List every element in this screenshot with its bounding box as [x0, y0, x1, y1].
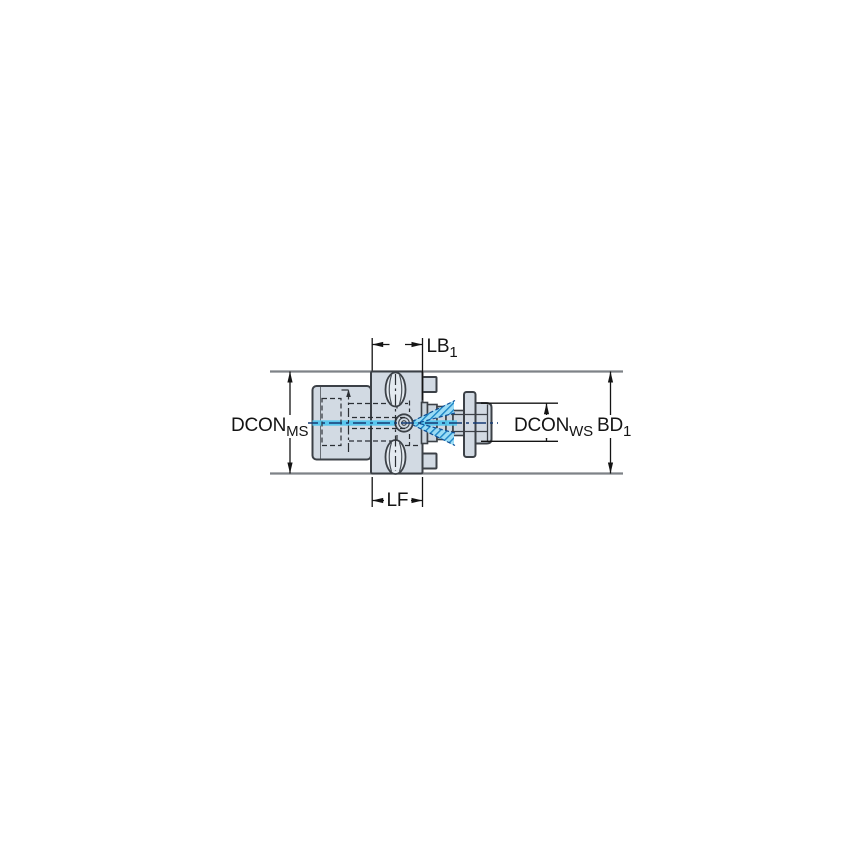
label-bd1: BD1 — [597, 415, 631, 438]
label-dcon-ws-main: DCON — [514, 415, 569, 436]
label-lf-main: LF — [387, 490, 409, 511]
label-lb1-main: LB — [427, 336, 450, 357]
label-dcon-ms: DCONMS — [231, 415, 308, 438]
label-dcon-ms-sub: MS — [286, 423, 308, 440]
label-dcon-ws-sub: WS — [569, 423, 593, 440]
label-lb1: LB1 — [427, 336, 458, 359]
adapter-drawing — [0, 0, 854, 854]
technical-drawing-canvas: LB1 DCONMS DCONWS BD1 LF — [0, 0, 854, 854]
label-bd1-sub: 1 — [623, 423, 631, 440]
label-lb1-sub: 1 — [449, 344, 457, 361]
spindle-disc — [464, 392, 476, 457]
label-dcon-ms-main: DCON — [231, 415, 286, 436]
label-bd1-main: BD — [597, 415, 623, 436]
label-dcon-ws: DCONWS — [514, 415, 593, 438]
label-lf: LF — [384, 490, 412, 513]
